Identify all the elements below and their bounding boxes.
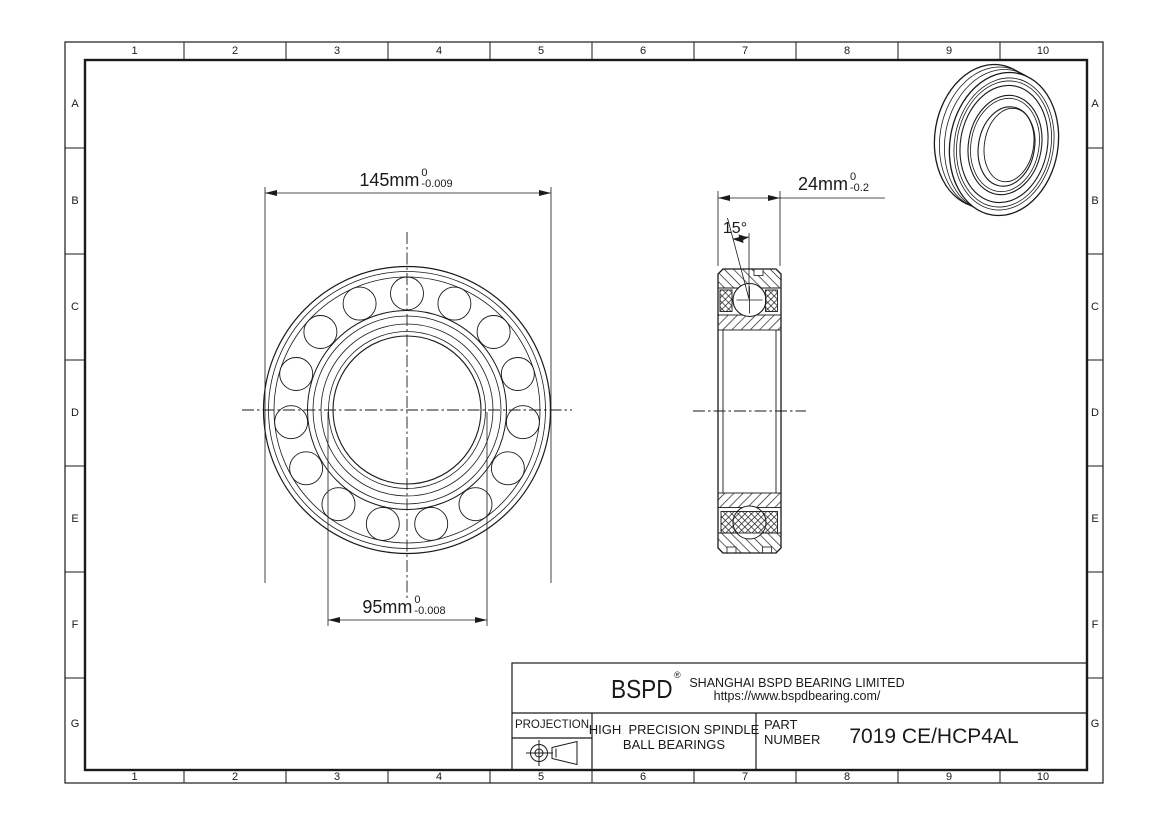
grid-row-label-left-B: B <box>71 195 78 207</box>
dimension-od-label: 145mm0-0.009 <box>359 169 452 191</box>
grid-column-label-bottom-6: 6 <box>640 771 646 783</box>
od-tolerance: 0-0.009 <box>421 168 452 190</box>
grid-column-label-top-2: 2 <box>232 45 238 57</box>
grid-row-label-right-D: D <box>1091 407 1099 419</box>
bore-tolerance: 0-0.008 <box>414 595 445 617</box>
grid-column-label-bottom-3: 3 <box>334 771 340 783</box>
grid-column-label-bottom-9: 9 <box>946 771 952 783</box>
brand-logo: BSPD <box>611 674 673 705</box>
projection-symbol-icon <box>526 740 577 766</box>
dimension-lines <box>265 187 885 626</box>
grid-row-label-left-A: A <box>71 98 78 110</box>
registered-trademark: ® <box>674 670 681 680</box>
product-description: HIGH PRECISION SPINDLEBALL BEARINGS <box>589 722 759 752</box>
bore-value: 95mm <box>362 597 412 618</box>
grid-column-label-top-10: 10 <box>1037 45 1049 57</box>
bearing-3d-view <box>923 56 1069 225</box>
part-number-value: 7019 CE/HCP4AL <box>849 725 1018 749</box>
grid-column-label-bottom-10: 10 <box>1037 771 1049 783</box>
grid-column-label-bottom-5: 5 <box>538 771 544 783</box>
drawing-sheet: 145mm0-0.009 95mm0-0.008 24mm0-0.2 15° B… <box>0 0 1170 827</box>
section-view <box>693 269 806 553</box>
grid-row-label-right-F: F <box>1092 619 1099 631</box>
front-view <box>242 232 572 600</box>
grid-row-label-right-G: G <box>1091 718 1100 730</box>
grid-column-label-top-9: 9 <box>946 45 952 57</box>
contact-angle-label: 15° <box>723 220 747 238</box>
grid-column-label-top-3: 3 <box>334 45 340 57</box>
dimension-width-label: 24mm0-0.2 <box>798 173 869 195</box>
grid-row-label-left-F: F <box>72 619 79 631</box>
grid-row-label-left-G: G <box>71 718 80 730</box>
grid-column-label-bottom-4: 4 <box>436 771 442 783</box>
grid-column-label-top-8: 8 <box>844 45 850 57</box>
grid-row-label-right-B: B <box>1091 195 1098 207</box>
drawing-linework <box>0 0 1170 827</box>
grid-column-label-top-5: 5 <box>538 45 544 57</box>
grid-row-label-right-E: E <box>1091 513 1098 525</box>
grid-column-label-top-4: 4 <box>436 45 442 57</box>
grid-column-label-bottom-2: 2 <box>232 771 238 783</box>
projection-label: PROJECTION <box>515 719 589 731</box>
grid-row-label-left-E: E <box>71 513 78 525</box>
grid-column-label-bottom-1: 1 <box>131 771 137 783</box>
grid-row-label-right-C: C <box>1091 301 1099 313</box>
grid-column-label-top-6: 6 <box>640 45 646 57</box>
grid-row-label-left-C: C <box>71 301 79 313</box>
grid-column-label-top-1: 1 <box>131 45 137 57</box>
width-value: 24mm <box>798 174 848 195</box>
width-tolerance: 0-0.2 <box>850 172 869 194</box>
grid-row-label-left-D: D <box>71 407 79 419</box>
dimension-bore-label: 95mm0-0.008 <box>362 596 445 618</box>
grid-column-label-bottom-8: 8 <box>844 771 850 783</box>
grid-row-label-right-A: A <box>1091 98 1098 110</box>
od-value: 145mm <box>359 170 419 191</box>
part-number-label: PARTNUMBER <box>764 718 820 747</box>
grid-column-label-bottom-7: 7 <box>742 771 748 783</box>
company-website: https://www.bspdbearing.com/ <box>714 689 881 703</box>
company-name: SHANGHAI BSPD BEARING LIMITED <box>689 676 904 690</box>
grid-column-label-top-7: 7 <box>742 45 748 57</box>
front-view-centerlines <box>242 232 572 600</box>
